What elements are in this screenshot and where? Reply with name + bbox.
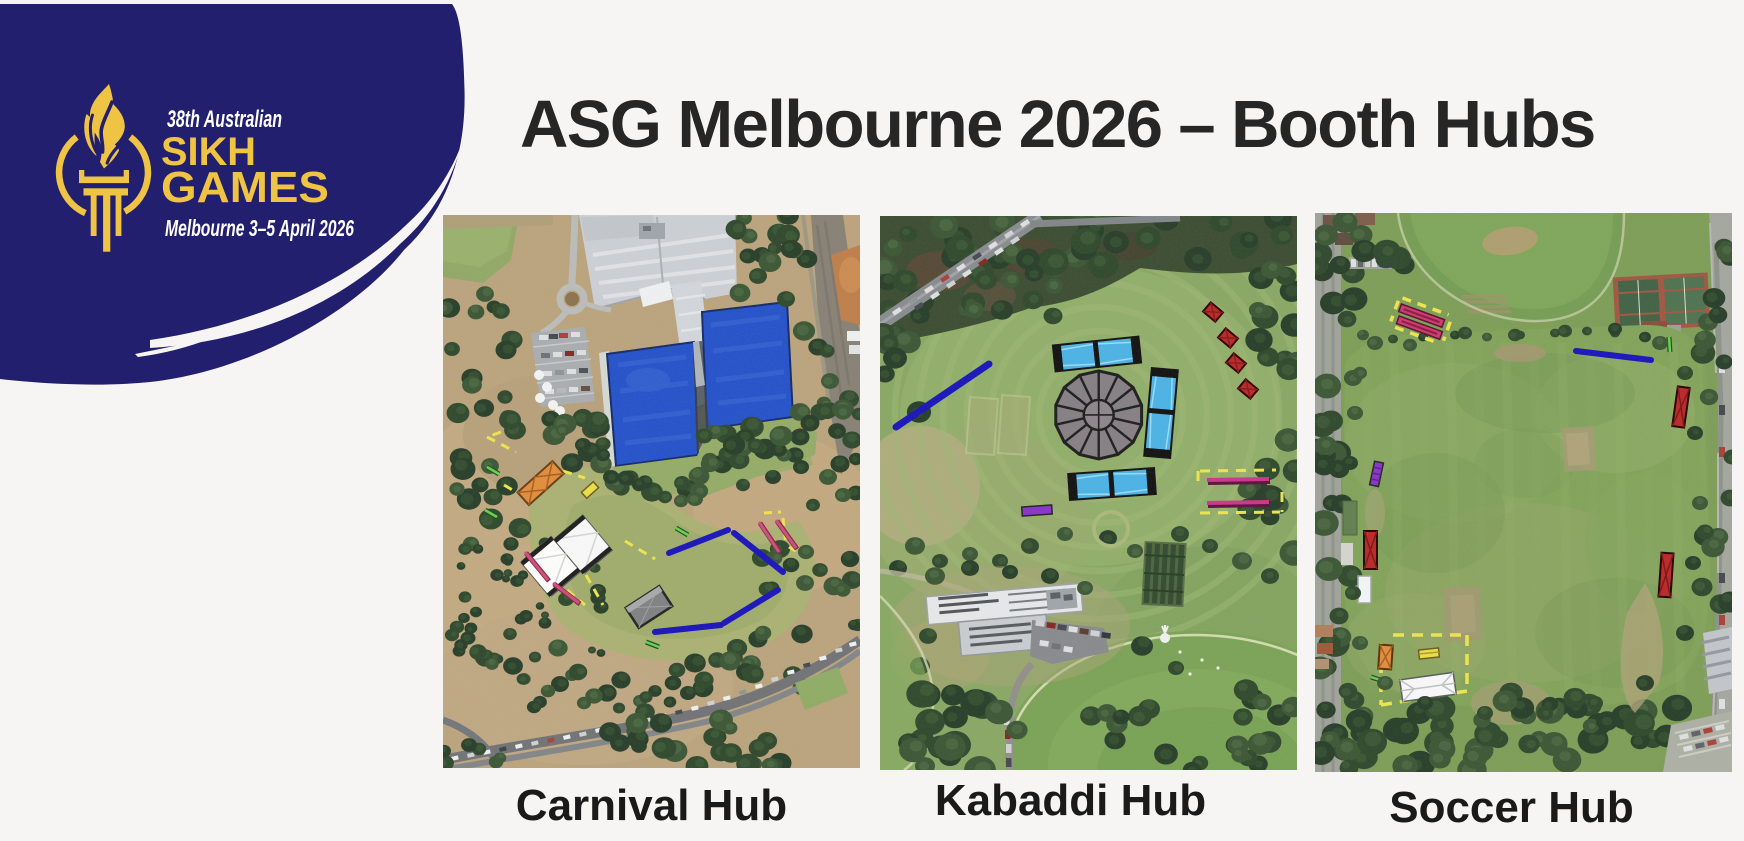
svg-text:38th Australian: 38th Australian [167, 106, 282, 133]
svg-text:Melbourne 3–5 April 2026: Melbourne 3–5 April 2026 [165, 215, 354, 241]
svg-text:GAMES: GAMES [161, 163, 329, 212]
